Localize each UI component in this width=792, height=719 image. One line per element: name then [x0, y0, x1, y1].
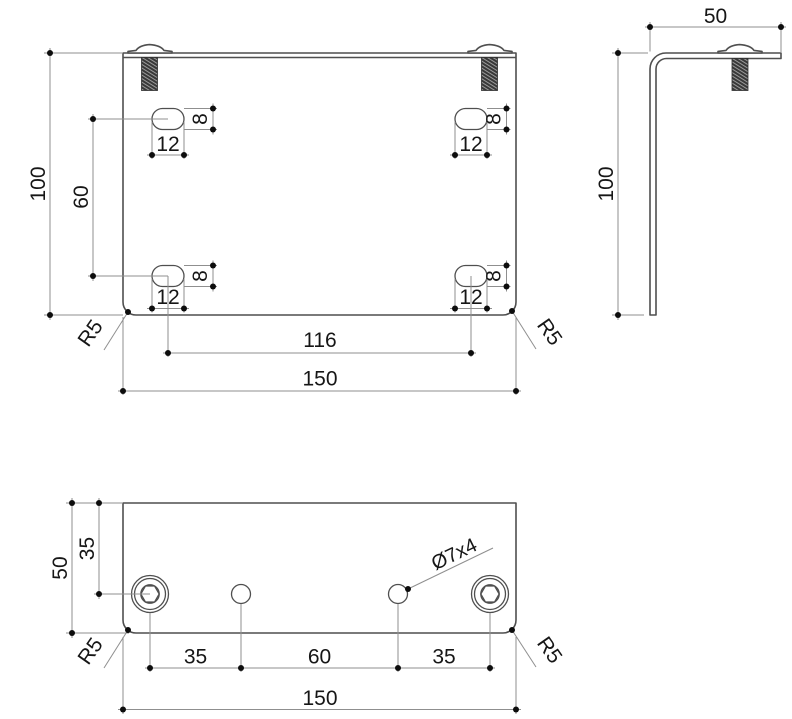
label-bottom-corner-radius-right: R5	[532, 633, 566, 668]
dim-slot-height-label-3: 8	[189, 270, 212, 282]
screw-side	[718, 45, 762, 91]
dim-slot-width-label-2: 12	[459, 133, 482, 156]
label-bottom-corner-radius-left: R5	[74, 634, 108, 669]
hole-3	[389, 585, 408, 604]
dim-side-depth-label: 50	[704, 5, 727, 28]
front-view: 100 60 8 12 8	[27, 45, 566, 395]
dim-bottom-depth-label: 50	[49, 556, 72, 579]
side-dim-height: 100	[595, 48, 648, 320]
front-radius-right: R5	[509, 308, 566, 350]
label-front-corner-radius-left: R5	[74, 316, 108, 351]
technical-drawing: 100 60 8 12 8	[0, 0, 792, 719]
dim-side-height-label: 100	[595, 166, 618, 201]
dim-bottom-pitch-right-label: 35	[432, 646, 455, 669]
hole-2	[232, 585, 251, 604]
dim-bottom-pitch-left-label: 35	[184, 646, 207, 669]
dim-front-height-label: 100	[27, 166, 50, 201]
bottom-view: 50 35 Ø7x4 35 60 35	[49, 498, 566, 714]
front-dim-height: 100	[27, 48, 123, 320]
bottom-flange-outline	[123, 503, 516, 633]
side-dim-depth: 50	[645, 5, 786, 53]
dim-slot-height-label-2: 8	[483, 113, 506, 125]
dim-front-slot-spacing-label: 116	[303, 329, 336, 352]
bottom-dim-depth: 50	[49, 498, 129, 638]
label-front-corner-radius-right: R5	[532, 315, 566, 350]
dim-slot-height-label-1: 8	[189, 113, 212, 125]
dim-slot-height-label-4: 8	[483, 270, 506, 282]
dim-bottom-pitch-center-label: 60	[308, 646, 331, 669]
dim-bottom-hole-offset-label: 35	[76, 537, 99, 560]
bottom-radius-right: R5	[509, 627, 566, 668]
dim-slot-width-label-1: 12	[156, 133, 179, 156]
side-profile-outline	[650, 53, 781, 315]
dim-front-width-label: 150	[302, 368, 337, 391]
side-view: 50 100	[595, 5, 786, 320]
dim-front-row-spacing-label: 60	[70, 185, 93, 208]
screw-top-right	[472, 576, 509, 613]
dim-bottom-width-label: 150	[302, 687, 337, 710]
